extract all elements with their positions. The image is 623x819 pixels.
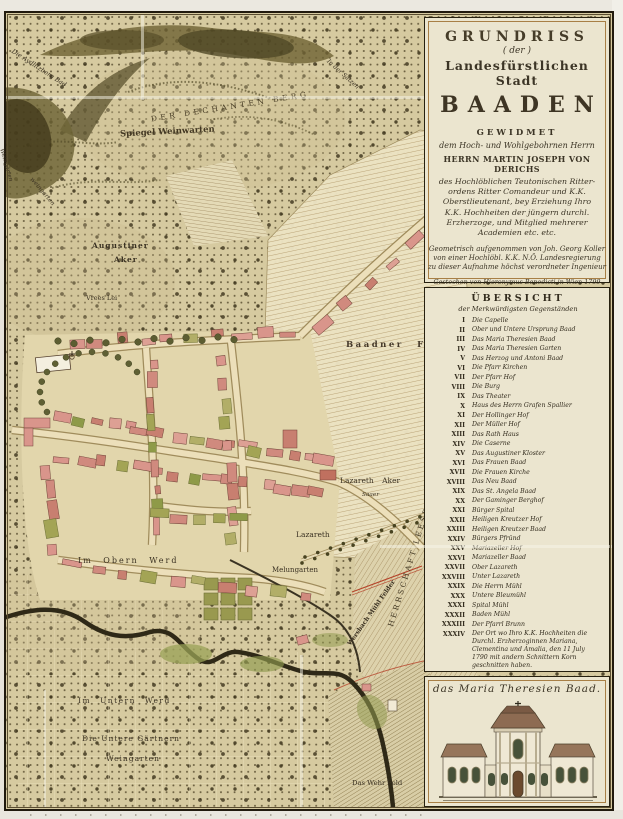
vignette-panel: das Maria Theresien Baad. bbox=[424, 676, 610, 807]
map-label-augustiner: Augustiner bbox=[92, 241, 149, 250]
legend-entries: IDie CapelleIIOber und Untere Ursprung B… bbox=[435, 316, 601, 670]
map-label-saaer: Saaer bbox=[362, 492, 379, 498]
map-label-untere-weingarten: Weingarten bbox=[106, 754, 160, 763]
legend-entry: XXIBürger Spital bbox=[435, 506, 601, 516]
legend-entry: IDie Capelle bbox=[435, 316, 601, 326]
legend-entry: XXVIMariazeller Baad bbox=[435, 554, 601, 564]
legend-entry: XXXIVDer Ort wo Ihro K.K. Hochheiten die… bbox=[435, 630, 601, 671]
fold-crease-h2 bbox=[380, 545, 612, 548]
legend-entry: XXDer Gaminger Berghof bbox=[435, 497, 601, 507]
title-der: ( der ) bbox=[425, 46, 609, 56]
scanned-map-page: { "document_type": "Engraved town plan (… bbox=[0, 0, 623, 819]
legend-entry: XIIDer Müller Hof bbox=[435, 421, 601, 431]
map-label-untere-gaertnern: Die Untere Gärtnern bbox=[82, 734, 180, 743]
map-label-im-untern-werd: Im Untern Werd bbox=[78, 696, 171, 705]
legend-entry: XIXDas St. Angela Baad bbox=[435, 487, 601, 497]
legend-entry: VIIDer Pfarr Hof bbox=[435, 373, 601, 383]
legend-entry: XVIIIDas Neu Baad bbox=[435, 478, 601, 488]
fold-crease-v3 bbox=[44, 690, 46, 807]
legend-title: ÜBERSICHT bbox=[435, 293, 601, 304]
title-baaden: BAADEN bbox=[425, 92, 609, 118]
vignette-building bbox=[433, 701, 603, 804]
legend-entry: IXDas Theater bbox=[435, 392, 601, 402]
map-label-melungarten: Melungarten bbox=[272, 566, 318, 574]
legend-entry: VIDie Pfarr Kirchen bbox=[435, 364, 601, 374]
legend-panel: ÜBERSICHT der Merkwürdigsten Gegenstände… bbox=[424, 287, 610, 672]
legend-entry: XXIXDie Herrn Mühl bbox=[435, 582, 601, 592]
fold-crease-v1 bbox=[141, 14, 144, 100]
legend-entry: XIVDie Caserne bbox=[435, 440, 601, 450]
title-stadt: Landesfürstlichen Stadt bbox=[425, 58, 609, 88]
map-label-augustiner-aker: Aker bbox=[114, 255, 138, 264]
legend-entry: XHaus des Herrn Grafen Spallier bbox=[435, 402, 601, 412]
legend-entry: XIIIDas Rath Haus bbox=[435, 430, 601, 440]
legend-entry: XXXIIIDer Pfarrl Brunn bbox=[435, 620, 601, 630]
legend-entry: IIIDas Maria Theresien Baad bbox=[435, 335, 601, 345]
legend-entry: XXIVBürgers Pfründ bbox=[435, 535, 601, 545]
dedication-header: GEWIDMET bbox=[425, 128, 609, 138]
legend-entry: XXIIIHeiligen Kreutzer Baad bbox=[435, 525, 601, 535]
legend-entry: VIIIDie Burg bbox=[435, 383, 601, 393]
vignette-caption: das Maria Theresien Baad. bbox=[425, 683, 609, 695]
legend-entry: XXVIIIUnter Lazareth bbox=[435, 573, 601, 583]
map-label-vrees-lei: Vrees Lei bbox=[86, 294, 117, 302]
dedication-sub: dem Hoch- und Wohlgebohrnen Herrn bbox=[425, 141, 609, 150]
legend-entry: XVDas Augustiner Kloster bbox=[435, 449, 601, 459]
dedication-text: des Hochlöblichen Teutonischen Ritter-or… bbox=[425, 177, 609, 238]
engraver-line: Gestochen von Hieronymus Benedicti in Wi… bbox=[425, 278, 609, 286]
legend-entry: XIDer Hollinger Hof bbox=[435, 411, 601, 421]
legend-entry: XVIDas Frauen Baad bbox=[435, 459, 601, 469]
legend-entry: VDas Herzog und Antoni Baad bbox=[435, 354, 601, 364]
fold-crease-v2 bbox=[300, 655, 303, 807]
dedicatee-name: HERRN MARTIN JOSEPH VON DERICHS bbox=[425, 154, 609, 174]
legend-entry: XVIIDie Frauen Kirche bbox=[435, 468, 601, 478]
legend-entry: XXXISpital Mühl bbox=[435, 601, 601, 611]
title-cartouche: GRUNDRISS ( der ) Landesfürstlichen Stad… bbox=[424, 17, 610, 283]
legend-entry: XXIIHeiligen Kreutzer Hof bbox=[435, 516, 601, 526]
legend-entry: XXXUntere Bleumühl bbox=[435, 592, 601, 602]
legend-subtitle: der Merkwürdigsten Gegenständen bbox=[435, 305, 601, 313]
legend-entry: XXVIIOber Lazareth bbox=[435, 563, 601, 573]
surveyor-text: Geometrisch aufgenommen von Joh. Georg K… bbox=[425, 245, 609, 272]
legend-entry: IIOber und Untere Ursprung Baad bbox=[435, 326, 601, 336]
map-title: GRUNDRISS bbox=[425, 29, 609, 45]
map-label-wehr-feld: Das Wehr Feld bbox=[352, 779, 402, 787]
legend-entry: XXXIIBaden Mühl bbox=[435, 611, 601, 621]
map-label-lazareth-aker: Lazareth Aker bbox=[340, 476, 400, 485]
map-label-lazareth: Lazareth bbox=[296, 530, 330, 539]
fold-crease-h1 bbox=[6, 96, 424, 99]
legend-entry: IVDas Maria Theresien Garten bbox=[435, 345, 601, 355]
map-label-im-obern-werd: Im Obern Werd bbox=[78, 556, 178, 565]
